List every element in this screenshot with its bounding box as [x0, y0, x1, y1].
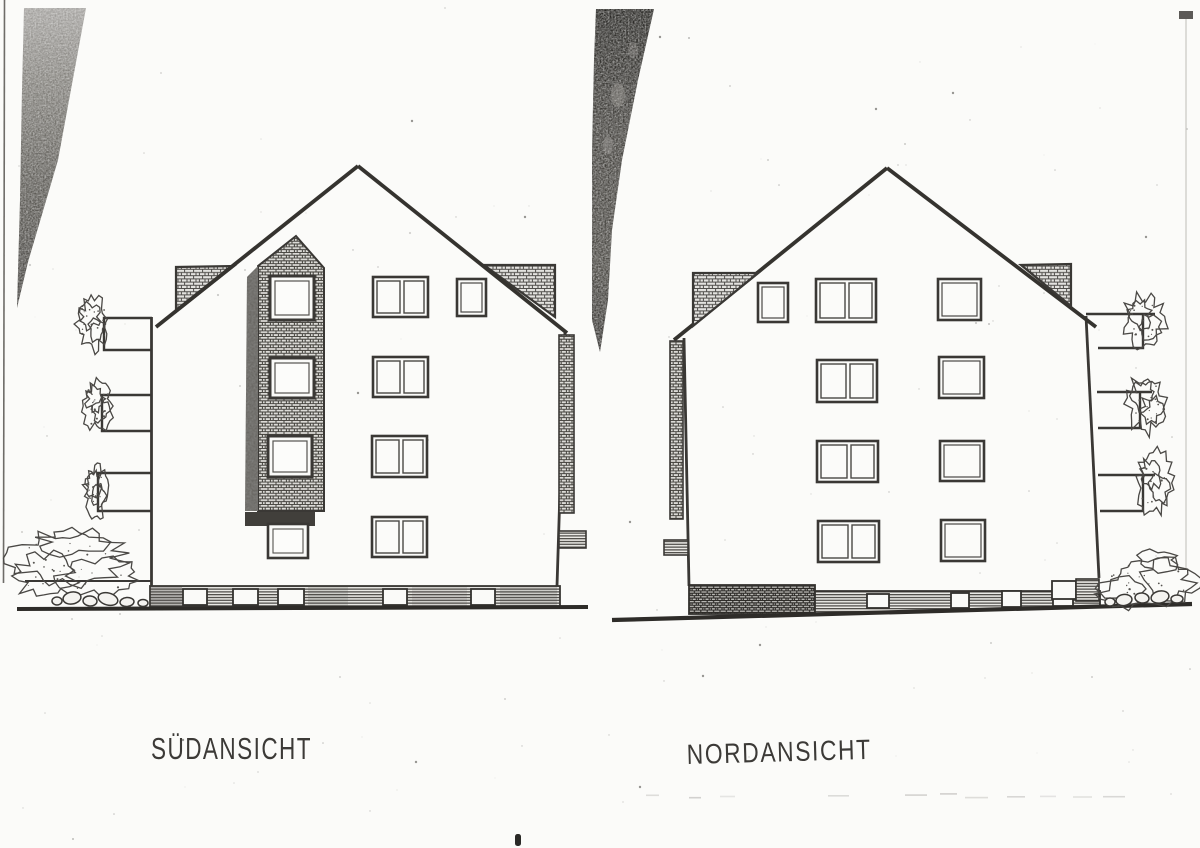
svg-text:SÜDANSICHT: SÜDANSICHT	[151, 731, 312, 766]
svg-text:NORDANSICHT: NORDANSICHT	[686, 734, 872, 770]
